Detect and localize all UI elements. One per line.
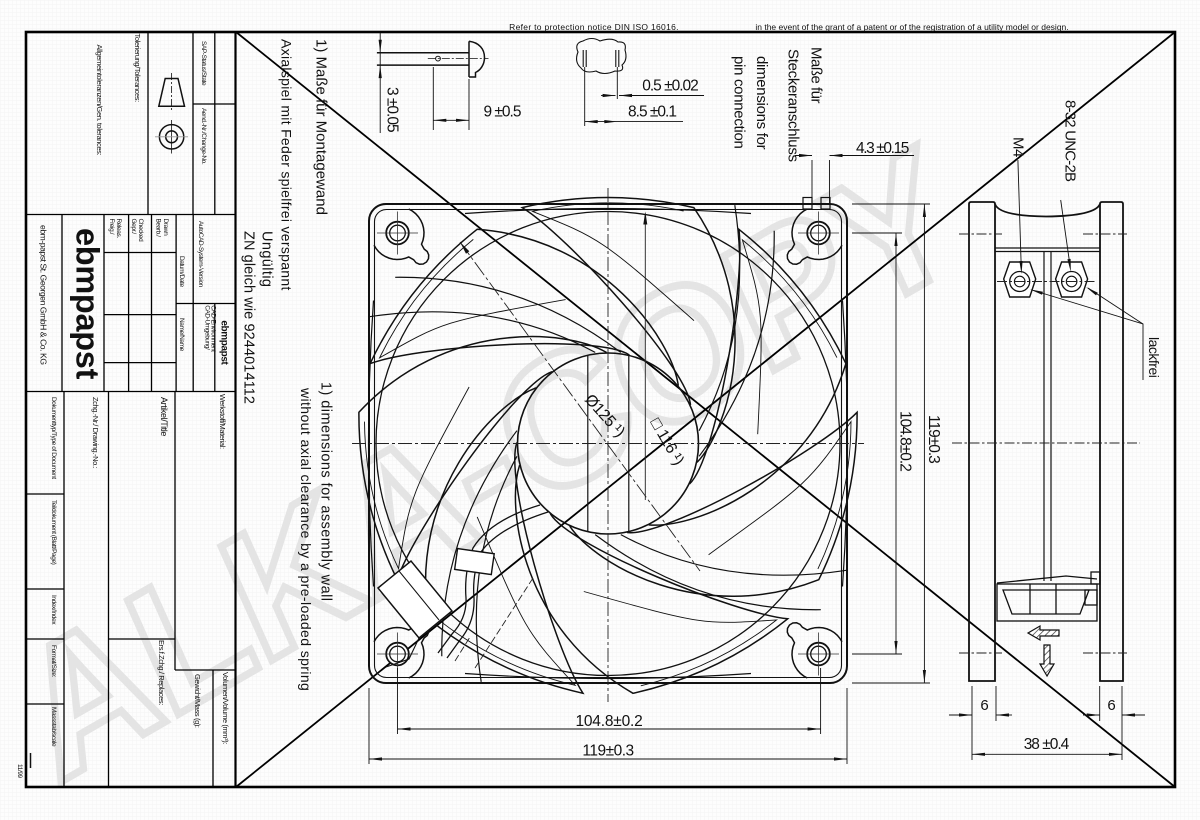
svg-text:M4: M4	[1010, 137, 1027, 157]
svg-text:Teildokument (Blatt/Page): Teildokument (Blatt/Page)	[50, 500, 57, 565]
svg-text:AutoCAD-System-Version: AutoCAD-System-Version	[197, 221, 204, 288]
svg-text:pin connection: pin connection	[731, 56, 748, 149]
svg-text:dimensions for: dimensions for	[753, 56, 770, 150]
svg-text:ZN gleich wie 9244014112: ZN gleich wie 9244014112	[240, 231, 256, 404]
svg-text:Checked: Checked	[137, 219, 144, 243]
svg-text:Drawn: Drawn	[162, 219, 169, 237]
svg-text:Axialspiel mit Feder spielfrei: Axialspiel mit Feder spielfrei verspannt	[279, 39, 295, 291]
svg-text:8-32 UNC-2B: 8-32 UNC-2B	[1062, 100, 1079, 182]
svg-text:6: 6	[980, 697, 988, 714]
svg-text:Tolerierung/Tolerances:: Tolerierung/Tolerances:	[133, 34, 142, 103]
svg-text:ebmpapst: ebmpapst	[69, 228, 105, 380]
svg-text:Zchg.-Nr./ Drawing.-No.:: Zchg.-Nr./ Drawing.-No.:	[91, 397, 100, 469]
svg-text:119±0.3: 119±0.3	[925, 415, 942, 463]
svg-text:3 ±0.05: 3 ±0.05	[383, 87, 400, 132]
svg-text:Refer to protection notice DIN: Refer to protection notice DIN ISO 16016…	[509, 22, 679, 32]
svg-text:Ungültig: Ungültig	[259, 231, 275, 287]
svg-text:Volumen/Volume (mm³):: Volumen/Volume (mm³):	[221, 672, 230, 744]
svg-text:in the event of the grant of a: in the event of the grant of a patent or…	[755, 22, 1068, 32]
svg-text:Index/Index: Index/Index	[50, 595, 57, 625]
svg-text:CAD-Umgebung/: CAD-Umgebung/	[204, 305, 211, 350]
svg-text:Allgemeintoleranzen/Gen. toler: Allgemeintoleranzen/Gen. tolerances:	[95, 45, 104, 156]
svg-text:8.5 ±0.1: 8.5 ±0.1	[628, 104, 676, 121]
svg-text:104.8±0.2: 104.8±0.2	[575, 713, 642, 730]
svg-text:104.8±0.2: 104.8±0.2	[896, 411, 913, 471]
svg-text:1) Maße für Montagewand: 1) Maße für Montagewand	[313, 39, 330, 215]
svg-text:CAD-Environment: CAD-Environment	[210, 305, 217, 352]
svg-text:Steckeranschluss: Steckeranschluss	[785, 49, 802, 162]
svg-text:Aend.-Nr./Change-No.: Aend.-Nr./Change-No.	[200, 108, 207, 165]
svg-text:without axial clearance by a p: without axial clearance by a pre-loaded …	[298, 387, 314, 691]
svg-text:SAP-Status/State: SAP-Status/State	[200, 41, 207, 86]
svg-text:Name/Name: Name/Name	[178, 318, 185, 352]
svg-text:Maße für: Maße für	[808, 47, 825, 104]
svg-text:ebm-papst St. Georgen GmbH & C: ebm-papst St. Georgen GmbH & Co. KG	[39, 225, 49, 365]
svg-text:Werkstoff/Material:: Werkstoff/Material:	[218, 394, 227, 449]
svg-text:9 ±0.5: 9 ±0.5	[484, 104, 521, 121]
svg-text:Dokumenttyp/Type of Document: Dokumenttyp/Type of Document	[50, 397, 57, 479]
svg-text:Gepr./: Gepr./	[130, 219, 137, 235]
svg-text:Format/Size:: Format/Size:	[50, 645, 57, 678]
svg-text:Bearb./: Bearb./	[155, 219, 162, 238]
svg-text:38 ±0.4: 38 ±0.4	[1024, 736, 1070, 753]
svg-text:Massstab/scale: Massstab/scale	[50, 707, 57, 747]
svg-text:Gewicht/Mass (g):: Gewicht/Mass (g):	[193, 674, 202, 728]
svg-text:ebmpapst: ebmpapst	[219, 320, 230, 365]
svg-text:Releas.: Releas.	[115, 219, 122, 239]
svg-text:6: 6	[1107, 697, 1115, 714]
svg-text:4.3 ±0.15: 4.3 ±0.15	[856, 140, 909, 157]
svg-text:Freig./: Freig./	[108, 219, 115, 235]
svg-text:Artikel/Title: Artikel/Title	[159, 397, 169, 436]
svg-text:lackfrei: lackfrei	[1146, 337, 1162, 378]
svg-text:11/99: 11/99	[16, 764, 23, 779]
svg-text:0.5 ±0.02: 0.5 ±0.02	[642, 78, 698, 95]
svg-text:1) dimensions for assembly wal: 1) dimensions for assembly wall	[318, 382, 334, 601]
svg-text:Datum/Date: Datum/Date	[178, 256, 185, 287]
svg-text:Ers.f.Zchg./ Replaces:: Ers.f.Zchg./ Replaces:	[157, 640, 166, 705]
svg-text:119±0.3: 119±0.3	[582, 743, 633, 760]
